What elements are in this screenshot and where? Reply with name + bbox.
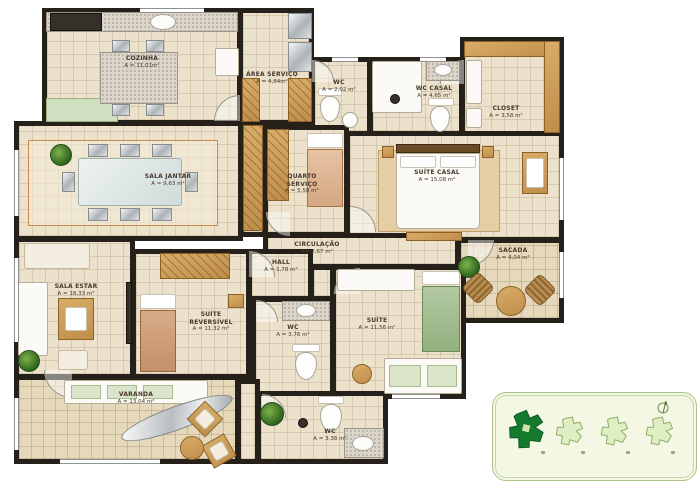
- chair: [112, 40, 130, 52]
- wash-basin: [342, 112, 358, 128]
- plant: [18, 350, 40, 372]
- plant: [50, 144, 72, 166]
- dining-table: [78, 158, 182, 206]
- round-table: [180, 436, 204, 460]
- cushion: [143, 385, 173, 399]
- headboard: [396, 144, 480, 153]
- chair: [120, 208, 140, 221]
- wash-basin: [352, 436, 374, 451]
- stove: [50, 13, 102, 31]
- site-key-plan: [492, 392, 697, 481]
- chair: [88, 144, 108, 157]
- closet-shelf: [466, 60, 482, 104]
- closet-shelf: [466, 108, 482, 128]
- washer: [288, 13, 312, 39]
- chair: [146, 40, 164, 52]
- cushion: [71, 385, 101, 399]
- sofa: [18, 282, 48, 356]
- bed-pillow: [440, 156, 476, 168]
- cushion: [526, 158, 544, 188]
- single-bed: [422, 286, 460, 352]
- window: [14, 398, 19, 450]
- laundry-tank: [288, 42, 312, 72]
- single-bed: [307, 149, 343, 207]
- bed-pillow: [140, 294, 176, 309]
- tick-mark: [671, 451, 675, 454]
- dresser: [337, 269, 415, 291]
- tick-mark: [541, 451, 545, 454]
- window: [140, 8, 204, 13]
- chair: [120, 144, 140, 157]
- toilet-tank: [292, 344, 320, 352]
- shower-head: [298, 418, 308, 428]
- wardrobe: [267, 129, 289, 201]
- building-footprint-highlighted: [507, 407, 547, 451]
- chair: [88, 208, 108, 221]
- building-footprint: [600, 415, 630, 447]
- chair: [152, 208, 172, 221]
- bed-pillow: [422, 271, 460, 285]
- armchair: [58, 350, 88, 370]
- wash-basin: [296, 304, 316, 317]
- fridge: [215, 48, 239, 76]
- window: [392, 394, 440, 399]
- cushion: [427, 365, 457, 387]
- bench: [64, 380, 208, 404]
- bed-pillow: [307, 133, 343, 148]
- tv-panel: [126, 282, 132, 344]
- compass-icon: [655, 399, 671, 415]
- cushion: [107, 385, 137, 399]
- chair: [112, 104, 130, 116]
- cushion: [389, 365, 421, 387]
- stool: [352, 364, 372, 384]
- window: [14, 150, 19, 216]
- window: [559, 158, 564, 220]
- nightstand: [228, 294, 244, 308]
- shower-head: [390, 94, 400, 104]
- chair: [185, 172, 198, 192]
- chair: [146, 104, 164, 116]
- window: [420, 57, 446, 62]
- chair: [62, 172, 75, 192]
- kitchen-sink: [150, 14, 176, 30]
- tick-mark: [626, 451, 630, 454]
- single-bed: [140, 310, 176, 372]
- wardrobe: [384, 358, 462, 394]
- toilet-tank: [318, 88, 342, 96]
- shower-box: [372, 61, 422, 113]
- kitchen-table: [100, 52, 178, 104]
- plant: [260, 402, 284, 426]
- building-footprint: [555, 415, 585, 447]
- window: [332, 57, 358, 62]
- sofa: [24, 243, 90, 269]
- toilet-tank: [318, 396, 344, 404]
- closet-wardrobe: [544, 41, 560, 133]
- bed-pillow: [400, 156, 436, 168]
- floor-plan-canvas: COZINHAA = 11,01m² ÁREA SERVIÇOA = 4,84m…: [0, 0, 700, 487]
- tray: [65, 307, 87, 331]
- round-table: [496, 286, 526, 316]
- tick-mark: [581, 451, 585, 454]
- coffee-table: [58, 298, 94, 340]
- wardrobe: [160, 253, 230, 279]
- cushion: [194, 408, 217, 431]
- nightstand: [382, 146, 394, 158]
- window: [14, 258, 19, 342]
- bed-bench: [406, 232, 462, 241]
- hall-cabinet: [243, 125, 263, 231]
- window: [60, 459, 160, 464]
- wash-basin: [434, 64, 452, 76]
- window: [559, 252, 564, 298]
- service-cabinet: [288, 78, 312, 122]
- service-cabinet: [242, 78, 260, 122]
- building-footprint: [645, 415, 675, 447]
- cushion: [208, 440, 230, 462]
- armchair: [522, 152, 548, 194]
- chair: [152, 144, 172, 157]
- nightstand: [482, 146, 494, 158]
- toilet-tank: [428, 98, 454, 106]
